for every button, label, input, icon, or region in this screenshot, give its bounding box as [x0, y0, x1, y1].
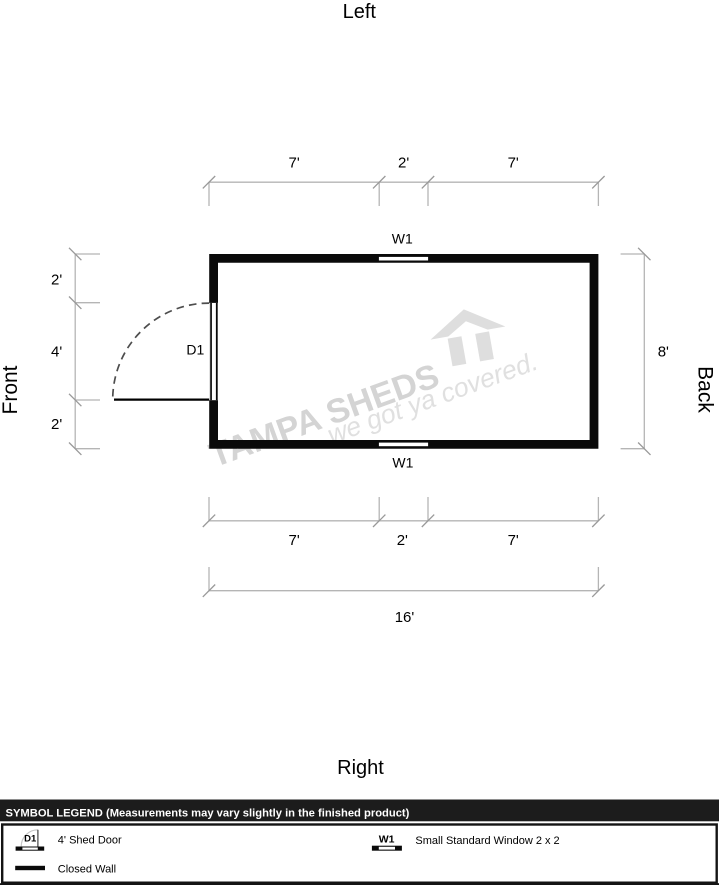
- svg-text:D1: D1: [24, 833, 37, 844]
- svg-text:8': 8': [658, 344, 669, 361]
- svg-text:4' Shed Door: 4' Shed Door: [58, 835, 122, 847]
- svg-text:D1: D1: [186, 342, 204, 358]
- svg-text:SYMBOL LEGEND (Measurements ma: SYMBOL LEGEND (Measurements may vary sli…: [6, 808, 410, 820]
- svg-text:2': 2': [51, 416, 62, 433]
- svg-text:W1: W1: [392, 455, 413, 471]
- svg-text:Left: Left: [343, 1, 377, 23]
- svg-text:Back: Back: [694, 366, 717, 413]
- svg-text:16': 16': [395, 609, 415, 626]
- svg-text:7': 7': [288, 532, 299, 549]
- svg-text:Right: Right: [337, 757, 384, 779]
- svg-text:Small Standard Window 2 x 2: Small Standard Window 2 x 2: [415, 835, 559, 847]
- svg-text:2': 2': [398, 154, 409, 171]
- svg-text:Closed Wall: Closed Wall: [58, 864, 116, 876]
- svg-text:2': 2': [397, 532, 408, 549]
- svg-text:2': 2': [51, 271, 62, 288]
- svg-text:W1: W1: [379, 833, 395, 845]
- svg-text:7': 7': [288, 154, 299, 171]
- svg-text:4': 4': [51, 344, 62, 361]
- svg-text:7': 7': [508, 532, 519, 549]
- svg-text:W1: W1: [392, 231, 413, 247]
- svg-text:7': 7': [508, 154, 519, 171]
- svg-text:Front: Front: [0, 365, 22, 414]
